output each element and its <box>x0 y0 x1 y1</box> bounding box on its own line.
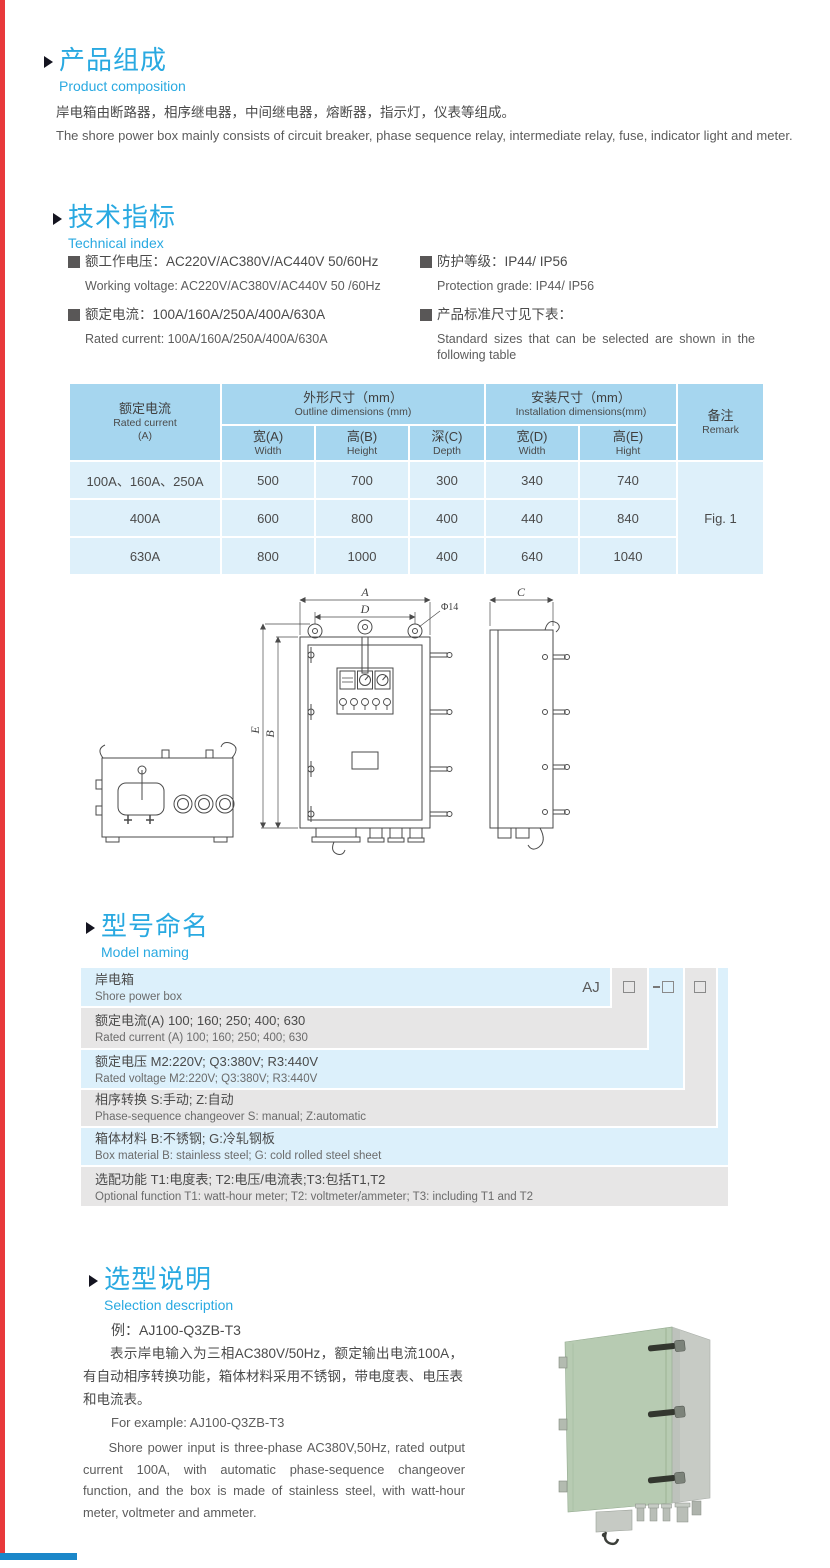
section-naming-header: 型号命名 Model naming <box>86 913 209 960</box>
technical-drawing: A D Φ14 E B C <box>0 582 830 882</box>
subheader-height-b: 高(B)Height <box>316 426 408 460</box>
code-box-current <box>623 981 635 993</box>
drawing-front-view <box>300 620 452 855</box>
dim-label-c: C <box>517 585 526 599</box>
spec-working-voltage: 额工作电压：AC220V/AC380V/AC440V 50/60Hz Worki… <box>68 253 413 294</box>
selection-example-en: For example: AJ100-Q3ZB-T3 <box>111 1415 284 1430</box>
section-arrow-icon <box>53 213 62 225</box>
selection-example-zh: 例：AJ100-Q3ZB-T3 <box>111 1320 241 1340</box>
dash-icon <box>653 986 660 988</box>
table-row: 630A 800 1000 400 640 1040 <box>70 538 763 574</box>
cell-value: 400 <box>410 538 484 574</box>
cell-value: 1040 <box>580 538 676 574</box>
cell-value: 840 <box>580 500 676 536</box>
cell-value: 600 <box>222 500 314 536</box>
subheader-width-d: 宽(D)Width <box>486 426 578 460</box>
spec-en-text: Working voltage: AC220V/AC380V/AC440V 50… <box>85 278 413 294</box>
cell-value: 300 <box>410 462 484 498</box>
section-arrow-icon <box>86 922 95 934</box>
code-box-voltage <box>662 981 674 993</box>
subheader-depth-c: 深(C)Depth <box>410 426 484 460</box>
spec-zh-text: 产品标准尺寸见下表： <box>437 306 572 323</box>
naming-row-shore-power-box: 岸电箱 Shore power box <box>95 972 182 1004</box>
selection-para-en: Shore power input is three-phase AC380V,… <box>83 1437 465 1523</box>
cell-value: 800 <box>316 500 408 536</box>
composition-title-en: Product composition <box>59 78 186 94</box>
naming-row-box-material: 箱体材料 B:不锈钢; G:冷轧钢板 Box material B: stain… <box>95 1131 381 1163</box>
naming-row-optional-function: 选配功能 T1:电度表; T2:电压/电流表;T3:包括T1,T2 Option… <box>95 1172 533 1204</box>
spec-zh-text: 防护等级：IP44/ IP56 <box>437 253 568 270</box>
spec-en-text: Protection grade: IP44/ IP56 <box>437 278 760 294</box>
cell-current: 400A <box>70 500 220 536</box>
selection-para-zh: 表示岸电输入为三相AC380V/50Hz，额定输出电流100A，有自动相序转换功… <box>83 1342 463 1411</box>
cell-current: 100A、160A、250A <box>70 462 220 498</box>
header-installation-dimensions: 安装尺寸（mm） Installation dimensions(mm) <box>486 384 676 424</box>
spec-column-left: 额工作电压：AC220V/AC380V/AC440V 50/60Hz Worki… <box>68 253 413 359</box>
composition-body-zh: 岸电箱由断路器，相序继电器，中间继电器，熔断器，指示灯，仪表等组成。 <box>56 101 515 121</box>
square-bullet-icon <box>420 309 432 321</box>
square-bullet-icon <box>68 256 80 268</box>
naming-column-band <box>612 968 647 1048</box>
cell-value: 740 <box>580 462 676 498</box>
cell-value: 640 <box>486 538 578 574</box>
naming-column-band <box>718 968 728 1165</box>
selection-title-zh: 选型说明 <box>104 1266 233 1293</box>
bottom-edge-rule <box>0 1553 77 1560</box>
product-photo <box>520 1300 820 1568</box>
spec-standard-sizes: 产品标准尺寸见下表： Standard sizes that can be se… <box>420 306 760 363</box>
cell-value: 500 <box>222 462 314 498</box>
cell-remark: Fig. 1 <box>678 462 763 574</box>
square-bullet-icon <box>68 309 80 321</box>
dim-label-b: B <box>263 730 277 738</box>
section-technical-header: 技术指标 Technical index <box>53 204 176 251</box>
dim-label-d: D <box>360 602 370 616</box>
spec-en-text: Standard sizes that can be selected are … <box>437 331 755 363</box>
table-row: 400A 600 800 400 440 840 <box>70 500 763 536</box>
cell-value: 700 <box>316 462 408 498</box>
size-table: 额定电流 Rated current (A) 外形尺寸（mm） Outline … <box>68 382 765 576</box>
section-arrow-icon <box>44 56 53 68</box>
model-prefix: AJ <box>571 968 611 1006</box>
cell-value: 440 <box>486 500 578 536</box>
header-remark: 备注 Remark <box>678 384 763 460</box>
code-box-optional <box>694 981 706 993</box>
header-outline-dimensions: 外形尺寸（mm） Outline dimensions (mm) <box>222 384 484 424</box>
spec-zh-text: 额工作电压：AC220V/AC380V/AC440V 50/60Hz <box>85 253 378 270</box>
drawing-side-view <box>490 600 570 849</box>
cell-value: 340 <box>486 462 578 498</box>
shore-power-box-photo <box>559 1327 710 1544</box>
dim-label-a: A <box>360 585 369 599</box>
drawing-bottom-view <box>96 743 236 843</box>
cell-current: 630A <box>70 538 220 574</box>
cell-value: 800 <box>222 538 314 574</box>
subheader-height-e: 高(E)Hight <box>580 426 676 460</box>
dim-label-e: E <box>248 726 262 735</box>
naming-row-rated-current: 额定电流(A) 100; 160; 250; 400; 630 Rated cu… <box>95 1013 308 1045</box>
section-selection-header: 选型说明 Selection description <box>89 1266 233 1313</box>
naming-row-rated-voltage: 额定电压 M2:220V; Q3:380V; R3:440V Rated vol… <box>95 1054 318 1086</box>
catalog-page: 产品组成 Product composition 岸电箱由断路器，相序继电器，中… <box>0 0 830 1568</box>
header-rated-current: 额定电流 Rated current (A) <box>70 384 220 460</box>
subheader-width-a: 宽(A)Width <box>222 426 314 460</box>
cell-value: 1000 <box>316 538 408 574</box>
spec-en-text: Rated current: 100A/160A/250A/400A/630A <box>85 331 413 347</box>
spec-rated-current: 额定电流：100A/160A/250A/400A/630A Rated curr… <box>68 306 413 347</box>
spec-column-right: 防护等级：IP44/ IP56 Protection grade: IP44/ … <box>420 253 760 375</box>
naming-title-en: Model naming <box>101 944 209 960</box>
spec-zh-text: 额定电流：100A/160A/250A/400A/630A <box>85 306 325 323</box>
naming-row-phase-changeover: 相序转换 S:手动; Z:自动 Phase-sequence changeove… <box>95 1092 366 1124</box>
spec-protection-grade: 防护等级：IP44/ IP56 Protection grade: IP44/ … <box>420 253 760 294</box>
composition-body-en: The shore power box mainly consists of c… <box>56 128 793 143</box>
technical-title-zh: 技术指标 <box>68 204 176 231</box>
section-arrow-icon <box>89 1275 98 1287</box>
technical-title-en: Technical index <box>68 235 176 251</box>
table-row: 100A、160A、250A 500 700 300 340 740 Fig. … <box>70 462 763 498</box>
section-composition-header: 产品组成 Product composition <box>44 47 186 94</box>
naming-title-zh: 型号命名 <box>101 913 209 940</box>
square-bullet-icon <box>420 256 432 268</box>
cell-value: 400 <box>410 500 484 536</box>
composition-title-zh: 产品组成 <box>59 47 186 74</box>
selection-title-en: Selection description <box>104 1297 233 1313</box>
hole-label: Φ14 <box>441 602 458 613</box>
